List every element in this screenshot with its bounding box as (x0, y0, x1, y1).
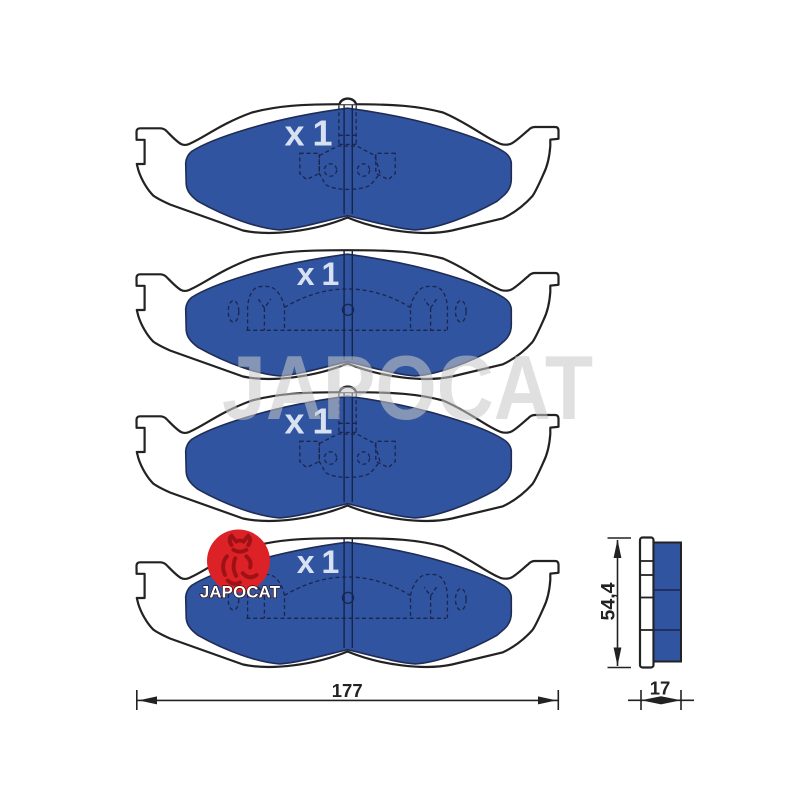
svg-text:JAPOCAT: JAPOCAT (200, 583, 281, 602)
svg-text:17: 17 (650, 678, 671, 699)
svg-text:177: 177 (332, 680, 363, 701)
svg-text:54,4: 54,4 (598, 582, 620, 620)
svg-text:JAPOCAT: JAPOCAT (222, 338, 593, 439)
